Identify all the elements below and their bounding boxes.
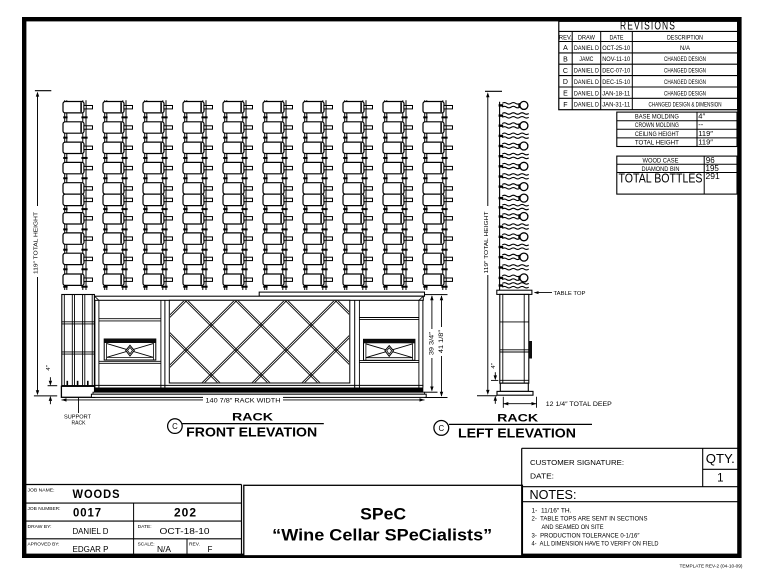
svg-text:JAMC: JAMC [579,56,593,63]
svg-text:WOOD CASE: WOOD CASE [643,158,679,165]
svg-text:TABLE TOP: TABLE TOP [554,291,586,297]
svg-text:F: F [563,102,567,109]
svg-text:DANIEL D: DANIEL D [574,90,599,97]
svg-text:E: E [563,91,568,98]
svg-text:N/A: N/A [157,545,172,554]
svg-text:CROWN MOLDING: CROWN MOLDING [635,122,679,129]
svg-text:DANIEL D: DANIEL D [574,68,599,75]
svg-text:TEMPLATE REV-2 (04-10-09): TEMPLATE REV-2 (04-10-09) [680,564,743,570]
svg-text:119″ TOTAL HEIGHT: 119″ TOTAL HEIGHT [33,212,39,274]
svg-text:AND SEAMED ON SITE: AND SEAMED ON SITE [542,524,605,531]
svg-text:CEILING HEIGHT: CEILING HEIGHT [635,131,679,138]
svg-text:SCALE:: SCALE: [138,542,155,548]
svg-text:OCT-18-10: OCT-18-10 [160,527,211,536]
svg-text:OCT-25-10: OCT-25-10 [602,45,631,52]
svg-text:D: D [563,79,568,86]
svg-text:4- ALL DIMENSION HAVE TO VERI: 4- ALL DIMENSION HAVE TO VERIFY ON FIELD [532,541,659,548]
svg-text:CHANGED DESIGN: CHANGED DESIGN [664,79,706,86]
svg-text:119″: 119″ [698,137,713,146]
svg-text:FRONT ELEVATION: FRONT ELEVATION [186,425,317,440]
svg-text:RACK: RACK [232,411,273,423]
svg-text:F: F [208,545,213,554]
svg-text:CHANGED DESIGN: CHANGED DESIGN [664,56,706,63]
svg-text:DRAW BY:: DRAW BY: [28,524,52,530]
svg-text:WOODS: WOODS [73,489,121,501]
svg-text:REV.: REV. [189,542,200,548]
svg-text:JAN-18-11: JAN-18-11 [602,90,631,97]
svg-text:DATE:: DATE: [138,524,152,530]
svg-text:QTY.: QTY. [706,452,735,466]
svg-text:REVISIONS: REVISIONS [620,21,676,33]
svg-text:DRAW: DRAW [578,34,595,41]
svg-text:C: C [172,422,178,431]
svg-text:NOTES:: NOTES: [530,488,577,502]
svg-text:291: 291 [706,171,720,181]
svg-text:140 7/8″ RACK WIDTH: 140 7/8″ RACK WIDTH [206,397,281,404]
svg-text:B: B [563,57,568,64]
svg-text:0017: 0017 [73,505,102,519]
svg-text:41 1/8″: 41 1/8″ [438,329,445,353]
svg-text:“Wine Cellar SPeCialists”: “Wine Cellar SPeCialists” [272,526,492,545]
svg-text:EDGAR P: EDGAR P [73,545,109,554]
svg-text:119″ TOTAL HEIGHT: 119″ TOTAL HEIGHT [484,211,490,273]
svg-text:C: C [563,68,568,75]
svg-text:A: A [563,45,568,52]
svg-text:DESCRIPTION: DESCRIPTION [667,34,703,41]
svg-text:3- PRODUCTION TOLERANCE 0-1/1: 3- PRODUCTION TOLERANCE 0-1/16″ [532,532,641,539]
svg-text:JOB NAME:: JOB NAME: [28,488,55,494]
svg-text:4″: 4″ [46,365,52,370]
svg-text:SPeC: SPeC [360,505,406,524]
svg-text:JOB NUMBER:: JOB NUMBER: [28,506,61,512]
svg-text:DATE:: DATE: [530,471,554,480]
svg-text:CUSTOMER SIGNATURE:: CUSTOMER SIGNATURE: [530,458,624,467]
svg-text:RACK: RACK [72,420,86,426]
svg-text:4″: 4″ [491,363,497,368]
svg-text:APROVED BY:: APROVED BY: [28,542,60,548]
svg-text:DANIEL D: DANIEL D [574,102,599,109]
svg-text:DEC-07-10: DEC-07-10 [602,68,631,75]
svg-text:RACK: RACK [497,413,538,425]
svg-text:CHANGED DESIGN: CHANGED DESIGN [664,68,706,75]
svg-text:LEFT ELEVATION: LEFT ELEVATION [458,426,576,441]
svg-text:DEC-15-10: DEC-15-10 [602,79,631,86]
svg-text:N/A: N/A [680,45,691,52]
svg-text:12 1/4″ TOTAL DEEP: 12 1/4″ TOTAL DEEP [546,401,612,408]
svg-text:CHANGED DESIGN & DIMENSION: CHANGED DESIGN & DIMENSION [649,102,722,109]
svg-text:TOTAL BOTTLES: TOTAL BOTTLES [619,171,703,186]
svg-text:BASE MOLDING: BASE MOLDING [635,114,679,121]
svg-text:2- TABLE TOPS ARE SENT IN SEC: 2- TABLE TOPS ARE SENT IN SECTIONS [532,516,649,523]
svg-text:DANIEL D: DANIEL D [574,45,599,52]
svg-text:CHANGED DESIGN: CHANGED DESIGN [664,90,706,97]
svg-text:JAN-31-11: JAN-31-11 [602,102,631,109]
svg-text:TOTAL HEIGHT: TOTAL HEIGHT [635,139,679,146]
svg-text:DATE: DATE [610,34,624,41]
svg-text:1- 11/16″ TH.: 1- 11/16″ TH. [532,507,572,514]
svg-text:39 3/4″: 39 3/4″ [428,331,435,355]
svg-text:202: 202 [174,505,197,519]
svg-text:C: C [438,424,444,433]
svg-text:NOV-11-10: NOV-11-10 [602,56,631,63]
svg-text:1: 1 [717,473,723,485]
svg-text:DANIEL D: DANIEL D [73,527,109,536]
svg-text:REV.: REV. [559,34,572,41]
svg-text:DANIEL D: DANIEL D [574,79,599,86]
